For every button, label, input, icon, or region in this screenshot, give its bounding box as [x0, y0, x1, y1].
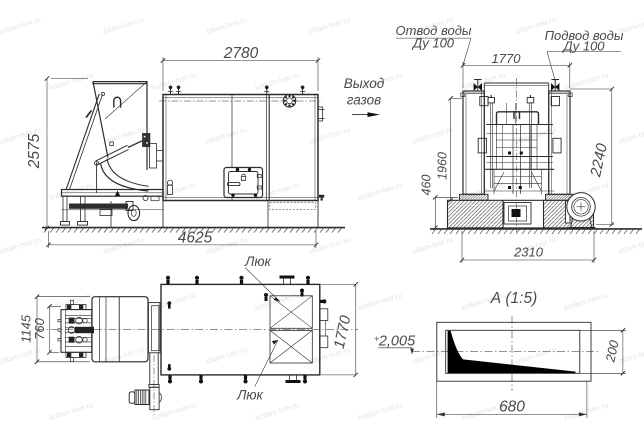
svg-text:Ду 100: Ду 100 — [561, 39, 605, 54]
svg-text:2575: 2575 — [26, 133, 43, 169]
svg-text:680: 680 — [499, 399, 525, 416]
svg-text:1960: 1960 — [436, 152, 450, 180]
svg-text:2310: 2310 — [513, 245, 544, 260]
svg-text:760: 760 — [32, 317, 47, 339]
svg-text:1770: 1770 — [492, 51, 522, 66]
svg-text:Люк: Люк — [236, 388, 263, 403]
svg-text:Ду 100: Ду 100 — [411, 36, 455, 51]
svg-text:Выход: Выход — [344, 76, 385, 91]
svg-text:2,005: 2,005 — [378, 334, 416, 350]
svg-text:Люк: Люк — [244, 254, 271, 269]
svg-text:газов: газов — [347, 93, 381, 108]
svg-text:4625: 4625 — [178, 230, 213, 247]
svg-text:2780: 2780 — [223, 45, 259, 62]
svg-text:460: 460 — [420, 175, 434, 196]
svg-text:А (1:5): А (1:5) — [490, 290, 538, 307]
